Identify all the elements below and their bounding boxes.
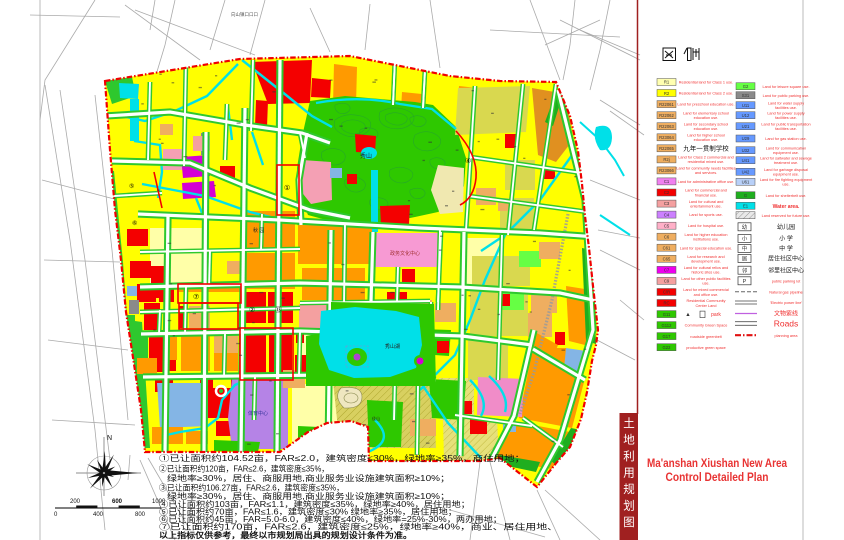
svg-text:Residential land for Class 2 u: Residential land for Class 2 use. [679, 92, 733, 96]
svg-text:Residential Community: Residential Community [686, 299, 725, 303]
svg-text:居: 居 [742, 256, 748, 263]
svg-text:C5: C5 [664, 223, 670, 228]
svg-text:C1: C1 [664, 179, 670, 184]
svg-text:historic sites use.: historic sites use. [691, 271, 720, 275]
svg-text:use.: use. [702, 282, 709, 286]
svg-text:G11: G11 [663, 312, 671, 317]
svg-text:E1: E1 [743, 204, 749, 209]
svg-text:⑦: ⑦ [193, 293, 199, 301]
svg-text:Community Green Space: Community Green Space [685, 324, 728, 328]
svg-text:planning area: planning area [774, 334, 798, 338]
svg-text:'Electric power line': 'Electric power line' [770, 301, 803, 305]
svg-text:Ma'anshan Xiushan New Area: Ma'anshan Xiushan New Area [647, 458, 788, 470]
svg-text:C7: C7 [664, 268, 670, 273]
svg-text:Control Detailed Plan: Control Detailed Plan [666, 472, 769, 484]
svg-text:G17: G17 [663, 334, 672, 339]
svg-text:facilities use.: facilities use. [775, 116, 797, 120]
svg-text:U21: U21 [742, 124, 750, 129]
svg-text:向山镇口口口: 向山镇口口口 [231, 11, 258, 18]
svg-text:⑬: ⑬ [275, 306, 282, 314]
svg-text:Land for water supply: Land for water supply [768, 101, 804, 105]
svg-text:facilities use.: facilities use. [775, 106, 797, 110]
svg-text:图: 图 [623, 516, 635, 529]
svg-text:秀山湖: 秀山湖 [385, 343, 400, 350]
svg-text:Residential land for Class 1 u: Residential land for Class 1 use. [679, 81, 733, 85]
svg-text:Land for community needs facil: Land for community needs facilities [676, 167, 735, 171]
svg-text:③已让面积约106.27亩，FAR≤2.6，建筑密度≤35%: ③已让面积约106.27亩，FAR≤2.6，建筑密度≤35%， [159, 482, 344, 492]
svg-text:R2: R2 [664, 91, 670, 96]
svg-text:S31: S31 [742, 93, 750, 98]
svg-text:Land for fire fighting equipme: Land for fire fighting equipment [760, 178, 813, 182]
svg-text:roadside greenbelt: roadside greenbelt [690, 335, 722, 339]
svg-text:equipment use.: equipment use. [773, 173, 799, 177]
svg-text:②: ② [249, 306, 255, 314]
svg-text:200: 200 [70, 499, 81, 505]
svg-text:Land for leisure square use.: Land for leisure square use. [762, 85, 809, 89]
svg-text:R22065: R22065 [659, 146, 674, 151]
svg-text:R22061: R22061 [659, 102, 674, 107]
svg-text:邻: 邻 [742, 266, 748, 274]
svg-text:400: 400 [93, 512, 104, 518]
svg-text:⑤: ⑤ [129, 183, 134, 190]
svg-text:use.: use. [782, 183, 789, 187]
svg-text:residential mixed use.: residential mixed use. [688, 160, 725, 164]
svg-text:政务文化中心: 政务文化中心 [390, 250, 420, 257]
svg-text:financial use.: financial use. [695, 193, 717, 197]
svg-text:U32: U32 [742, 148, 750, 153]
svg-text:Land for higher education: Land for higher education [684, 233, 727, 237]
svg-text:Land for public transportation: Land for public transportation [761, 122, 810, 126]
svg-text:Land for gas station use.: Land for gas station use. [765, 137, 807, 141]
svg-text:小: 小 [742, 235, 748, 243]
svg-text:C61: C61 [663, 245, 671, 250]
svg-text:and services.: and services. [695, 171, 717, 175]
svg-text:education use.: education use. [694, 127, 719, 131]
svg-text:C/R: C/R [663, 290, 670, 295]
svg-text:Land for public parking use.: Land for public parking use. [763, 94, 810, 98]
svg-text:development use.: development use. [691, 260, 721, 264]
svg-text:Land for other public faciliti: Land for other public facilities [681, 277, 730, 281]
svg-text:Land for garbage disposal: Land for garbage disposal [764, 168, 808, 172]
svg-text:N: N [107, 435, 112, 442]
svg-text:①已让面积约104.52亩，FAR≤2.0，建筑密度≤30%: ①已让面积约104.52亩，FAR≤2.0，建筑密度≤30%，绿地率≥35%，商… [159, 453, 525, 463]
svg-text:U29: U29 [742, 136, 750, 141]
svg-text:R1: R1 [664, 80, 670, 85]
svg-text:④: ④ [465, 157, 471, 165]
svg-text:Land for secondary school: Land for secondary school [684, 122, 729, 126]
svg-text:C2: C2 [664, 190, 670, 195]
svg-text:equipment use.: equipment use. [773, 151, 799, 155]
svg-text:G: G [744, 193, 747, 198]
svg-text:Land for elementary school: Land for elementary school [683, 111, 729, 115]
svg-text:Land reserved for future use.: Land reserved for future use. [762, 214, 811, 218]
svg-text:Land for administrative office: Land for administrative office use. [678, 180, 735, 184]
svg-text:规: 规 [623, 482, 635, 496]
svg-text:U41: U41 [742, 158, 750, 163]
svg-text:绿地率≥30%，居住、商服用地,商业服务业设施建筑面积≥10: 绿地率≥30%，居住、商服用地,商业服务业设施建筑面积≥10%； [167, 473, 450, 483]
svg-text:U61: U61 [742, 180, 750, 185]
svg-text:800: 800 [135, 512, 146, 518]
svg-text:小 学: 小 学 [779, 235, 793, 243]
svg-text:佳山: 佳山 [372, 415, 380, 421]
svg-text:R22063: R22063 [659, 124, 674, 129]
svg-text:public parking lot: public parking lot [772, 279, 801, 283]
svg-text:中 学: 中 学 [779, 245, 793, 253]
svg-text:facilities use.: facilities use. [775, 127, 797, 131]
svg-text:C3: C3 [664, 201, 670, 206]
svg-text:Land for research and: Land for research and [687, 255, 724, 259]
svg-text:U11: U11 [742, 103, 750, 108]
svg-text:⑥: ⑥ [132, 220, 137, 227]
svg-text:entertainment use.: entertainment use. [690, 204, 721, 208]
svg-text:U12: U12 [742, 113, 750, 118]
svg-text:土: 土 [623, 417, 635, 430]
svg-text:②已让面积约120亩，FAR≤2.6，建筑密度≤35%，: ②已让面积约120亩，FAR≤2.6，建筑密度≤35%， [159, 464, 329, 474]
svg-text:park: park [711, 312, 721, 318]
svg-text:①: ① [284, 184, 290, 192]
svg-text:九年一贯制学校: 九年一贯制学校 [683, 143, 729, 152]
svg-text:Natural gas pipeline: Natural gas pipeline [769, 290, 803, 294]
svg-text:幼: 幼 [742, 223, 748, 231]
svg-text:R2j: R2j [663, 157, 669, 162]
svg-text:居住社区中心: 居住社区中心 [768, 255, 804, 263]
svg-text:education use.: education use. [694, 138, 719, 142]
svg-text:用: 用 [623, 468, 635, 480]
svg-text:G112: G112 [662, 323, 673, 328]
svg-text:利: 利 [623, 450, 635, 463]
svg-text:文物紫线: 文物紫线 [774, 310, 798, 318]
svg-text:Land for special education use: Land for special education use. [680, 246, 733, 250]
svg-text:R23066: R23066 [659, 168, 674, 173]
svg-text:R23064: R23064 [659, 135, 674, 140]
svg-text:Roads: Roads [774, 319, 799, 329]
svg-text:秀山: 秀山 [360, 152, 372, 160]
svg-text:treatment use.: treatment use. [774, 161, 798, 165]
svg-text:P: P [743, 279, 747, 285]
svg-text:Land for commercial and: Land for commercial and [685, 189, 727, 193]
svg-text:C4: C4 [664, 212, 670, 217]
svg-text:600: 600 [112, 499, 123, 505]
svg-text:以上指标仅供参考，最终以市规划局出具的规划设计条件为准。: 以上指标仅供参考，最终以市规划局出具的规划设计条件为准。 [159, 530, 412, 540]
svg-text:G22: G22 [663, 345, 672, 350]
svg-text:R22062: R22062 [659, 113, 674, 118]
svg-text:C9: C9 [664, 279, 670, 284]
svg-text:Land for Class 2 commercial an: Land for Class 2 commercial and [678, 156, 734, 160]
svg-text:划: 划 [623, 500, 635, 513]
svg-text:幼儿园: 幼儿园 [777, 223, 795, 231]
svg-text:Land for sports use.: Land for sports use. [689, 213, 723, 217]
svg-text:Land for communication: Land for communication [766, 146, 807, 150]
svg-text:Land for power supply: Land for power supply [767, 111, 804, 115]
svg-text:Land for hospital use.: Land for hospital use. [688, 224, 724, 228]
svg-text:邻里社区中心: 邻里社区中心 [768, 266, 804, 274]
svg-text:U42: U42 [742, 170, 750, 175]
svg-text:Center Land: Center Land [696, 304, 717, 308]
svg-text:institutions use.: institutions use. [693, 238, 719, 242]
svg-text:Water area.: Water area. [773, 204, 800, 210]
svg-text:and office use.: and office use. [694, 293, 719, 297]
svg-text:Land for saltwater and sewage: Land for saltwater and sewage [760, 156, 812, 160]
svg-text:G2: G2 [743, 84, 749, 89]
svg-text:Land for higher school: Land for higher school [687, 133, 725, 137]
svg-text:秋 园: 秋 园 [253, 227, 264, 234]
svg-text:Land for cultural relics and: Land for cultural relics and [684, 266, 729, 270]
svg-text:Land for preschool education u: Land for preschool education use. [677, 103, 734, 107]
svg-text:C65: C65 [663, 257, 671, 262]
svg-text:中: 中 [742, 245, 748, 253]
svg-text:education use.: education use. [694, 116, 719, 120]
svg-text:▲: ▲ [685, 312, 690, 318]
svg-text:productive green space: productive green space [686, 346, 725, 350]
svg-text:Land for mixed commercial: Land for mixed commercial [683, 288, 729, 292]
svg-text:地: 地 [623, 434, 635, 447]
svg-text:Land for shelterbelt use.: Land for shelterbelt use. [766, 194, 807, 198]
svg-text:Land for cultural and: Land for cultural and [689, 200, 724, 204]
svg-text:RC: RC [663, 301, 669, 306]
svg-text:C6: C6 [664, 234, 670, 239]
svg-text:体育中心: 体育中心 [248, 410, 268, 417]
